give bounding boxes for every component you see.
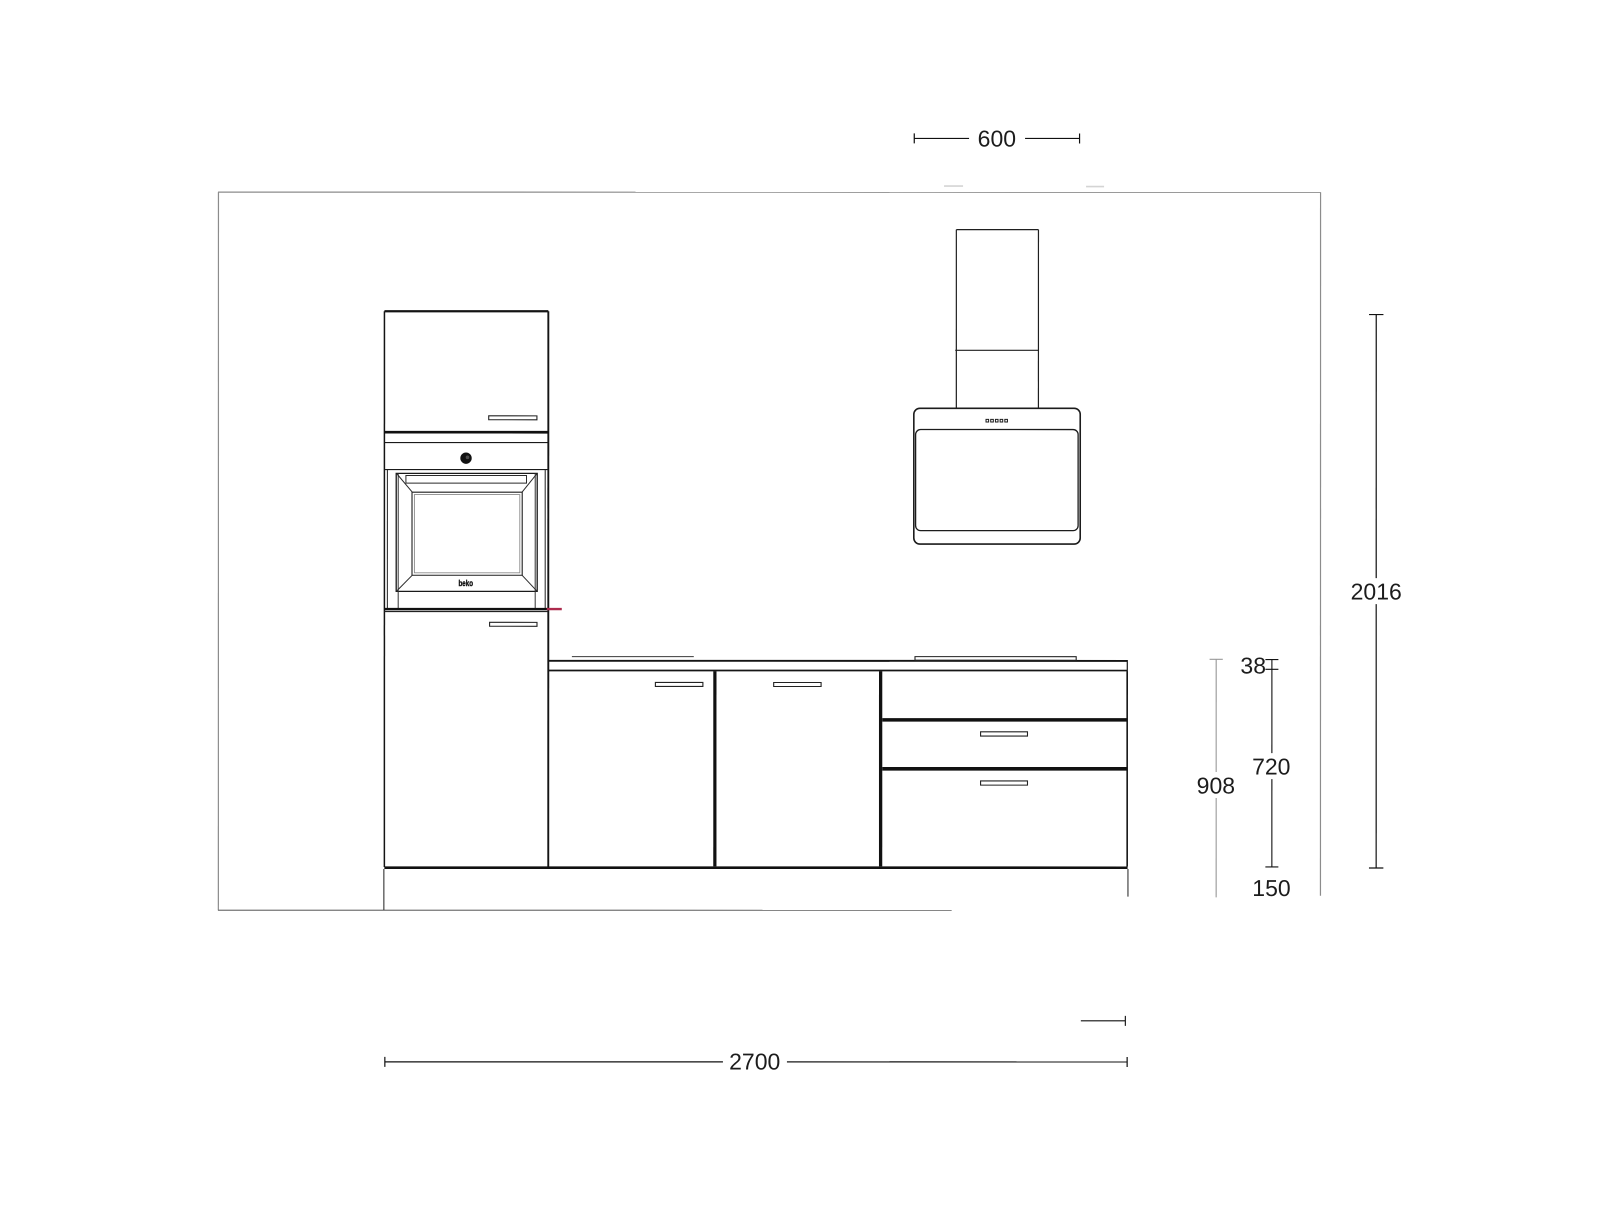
svg-text:2700: 2700: [729, 1049, 780, 1075]
svg-text:720: 720: [1252, 753, 1290, 779]
svg-text:908: 908: [1197, 773, 1235, 799]
svg-text:150: 150: [1252, 875, 1290, 901]
svg-text:beko: beko: [458, 578, 473, 588]
svg-text:600: 600: [978, 126, 1016, 152]
svg-text:38: 38: [1240, 653, 1266, 679]
svg-text:2016: 2016: [1351, 578, 1402, 604]
